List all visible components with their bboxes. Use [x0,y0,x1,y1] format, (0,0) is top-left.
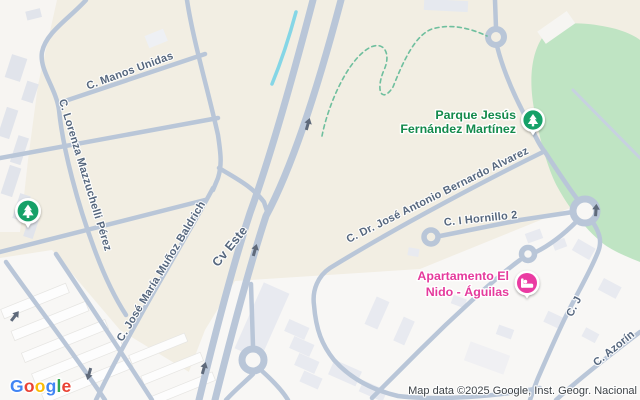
park-label-line2: Fernández Martínez [400,122,516,136]
roundabout [242,349,264,371]
logo-letter: G [10,376,24,396]
road-main-northeast [495,0,496,28]
logo-letter: o [35,376,46,396]
map-viewport[interactable]: C. Manos Unidas C. Lorenza Mazzuchelli P… [0,0,640,400]
park-label-line1: Parque Jesús [435,108,516,122]
apartment-label-line1: Apartamento El [417,269,509,283]
apartment-label-line2: Nido - Águilas [426,284,509,299]
road-roundabout-north-stub [251,284,253,346]
map-canvas[interactable]: C. Manos Unidas C. Lorenza Mazzuchelli P… [0,0,640,400]
marker-fill [517,273,537,293]
google-logo[interactable]: Google [10,376,72,396]
roundabout [522,248,535,261]
roundabout [424,230,438,244]
map-attribution: Map data ©2025 Google, Inst. Geogr. Naci… [408,385,637,397]
logo-letter: o [24,376,35,396]
roundabout [488,29,504,45]
logo-letter: g [46,376,57,396]
logo-letter: e [62,376,72,396]
roundabout [573,199,597,223]
